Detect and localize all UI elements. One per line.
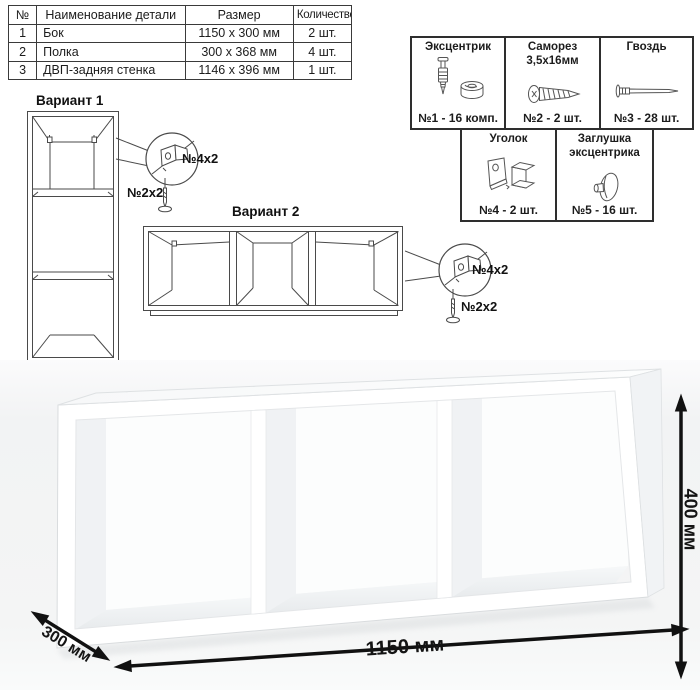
variant1-callout [115, 126, 227, 220]
hardware-count: №5 - 16 шт. [557, 203, 652, 217]
hardware-cell-nail: Гвоздь №3 - 28 шт. [599, 36, 694, 130]
screw-icon [526, 80, 584, 108]
hardware-box: Эксцентрик №1 - 16 комп. [410, 36, 694, 222]
hardware-count: №4 - 2 шт. [462, 203, 555, 217]
col-header-size: Размер [185, 6, 293, 25]
eccentric-cam-icon [428, 56, 490, 106]
hardware-count: №3 - 28 шт. [601, 111, 692, 125]
hardware-count: №2 - 2 шт. [506, 111, 599, 125]
cell-name: Бок [37, 24, 185, 43]
cell-size: 300 x 368 мм [185, 43, 293, 62]
col-header-qty: Количество [293, 6, 351, 25]
cell-number: 2 [9, 43, 37, 62]
table-row: 1 Бок 1150 x 300 мм 2 шт. [9, 24, 352, 43]
corner-bracket-icon [482, 155, 538, 199]
variant2-bracket-label: №4х2 [472, 262, 508, 277]
hardware-count: №1 - 16 комп. [412, 111, 504, 125]
cell-number: 3 [9, 61, 37, 80]
cell-size: 1146 x 396 мм [185, 61, 293, 80]
cell-size: 1150 x 300 мм [185, 24, 293, 43]
parts-table-header-row: № Наименование детали Размер Количество [9, 6, 352, 25]
height-dimension-label: 400 мм [680, 475, 700, 565]
assembly-instruction-sheet: № Наименование детали Размер Количество … [0, 0, 700, 690]
variant2-drawing [141, 222, 407, 324]
hardware-title: Эксцентрик [412, 41, 504, 55]
hardware-cell-screw: Саморез 3,5х16мм №2 - 2 шт. [504, 36, 601, 130]
variant2-callout [405, 237, 517, 331]
hardware-title: Уголок [462, 133, 555, 147]
hardware-cell-cam-cap: Заглушка эксцентрика №5 - 16 шт. [555, 128, 654, 222]
variant1-bracket-label: №4х2 [182, 151, 218, 166]
cell-qty: 4 шт. [293, 43, 351, 62]
variant2-title: Вариант 2 [232, 204, 299, 219]
variant1-title: Вариант 1 [36, 93, 103, 108]
cell-name: Полка [37, 43, 185, 62]
variant1-drawing [26, 109, 120, 365]
cell-qty: 2 шт. [293, 24, 351, 43]
cell-number: 1 [9, 24, 37, 43]
hardware-title: Заглушка эксцентрика [557, 133, 652, 161]
cell-qty: 1 шт. [293, 61, 351, 80]
cell-name: ДВП-задняя стенка [37, 61, 185, 80]
variant2-screw-label: №2х2 [461, 299, 497, 314]
table-row: 2 Полка 300 x 368 мм 4 шт. [9, 43, 352, 62]
variant1-screw-label: №2х2 [127, 185, 163, 200]
table-row: 3 ДВП-задняя стенка 1146 x 396 мм 1 шт. [9, 61, 352, 80]
col-header-name: Наименование детали [37, 6, 185, 25]
hardware-cell-eccentric: Эксцентрик №1 - 16 комп. [410, 36, 506, 130]
nail-icon [613, 82, 681, 100]
hardware-cell-corner-bracket: Уголок №4 - 2 шт. [460, 128, 557, 222]
col-header-number: № [9, 6, 37, 25]
hardware-title: Саморез 3,5х16мм [506, 41, 599, 69]
hardware-title: Гвоздь [601, 41, 692, 55]
parts-table: № Наименование детали Размер Количество … [8, 5, 352, 80]
